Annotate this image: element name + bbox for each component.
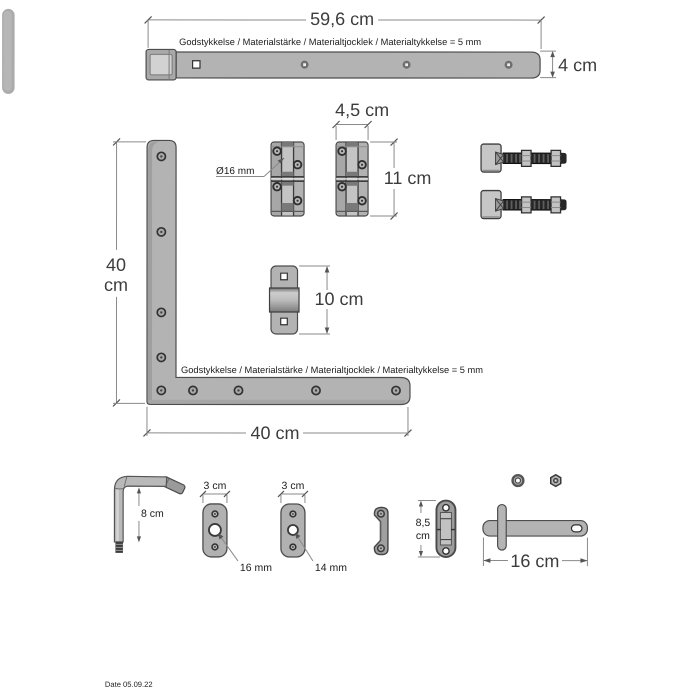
svg-text:Godstykkelse / Materialstärke: Godstykkelse / Materialstärke / Material… bbox=[179, 37, 481, 47]
svg-text:16 cm: 16 cm bbox=[510, 551, 559, 571]
svg-text:Godstykkelse / Materialstärke: Godstykkelse / Materialstärke / Material… bbox=[181, 365, 483, 375]
svg-text:3 cm: 3 cm bbox=[204, 480, 227, 492]
svg-text:10 cm: 10 cm bbox=[314, 289, 363, 309]
svg-text:Ø16 mm: Ø16 mm bbox=[216, 166, 254, 177]
svg-text:cm: cm bbox=[104, 275, 128, 295]
svg-text:8 cm: 8 cm bbox=[141, 508, 164, 520]
svg-text:40: 40 bbox=[106, 255, 126, 275]
svg-text:4 cm: 4 cm bbox=[558, 55, 597, 75]
svg-text:8,5: 8,5 bbox=[416, 517, 431, 529]
svg-text:cm: cm bbox=[416, 530, 430, 542]
svg-text:11 cm: 11 cm bbox=[384, 168, 432, 188]
svg-text:40 cm: 40 cm bbox=[250, 423, 299, 443]
svg-text:16 mm: 16 mm bbox=[240, 562, 272, 574]
svg-text:Date 05.09.22: Date 05.09.22 bbox=[105, 680, 153, 689]
svg-text:4,5 cm: 4,5 cm bbox=[335, 100, 389, 120]
svg-text:59,6 cm: 59,6 cm bbox=[310, 9, 374, 29]
svg-text:14 mm: 14 mm bbox=[315, 562, 347, 574]
svg-text:3 cm: 3 cm bbox=[282, 480, 305, 492]
